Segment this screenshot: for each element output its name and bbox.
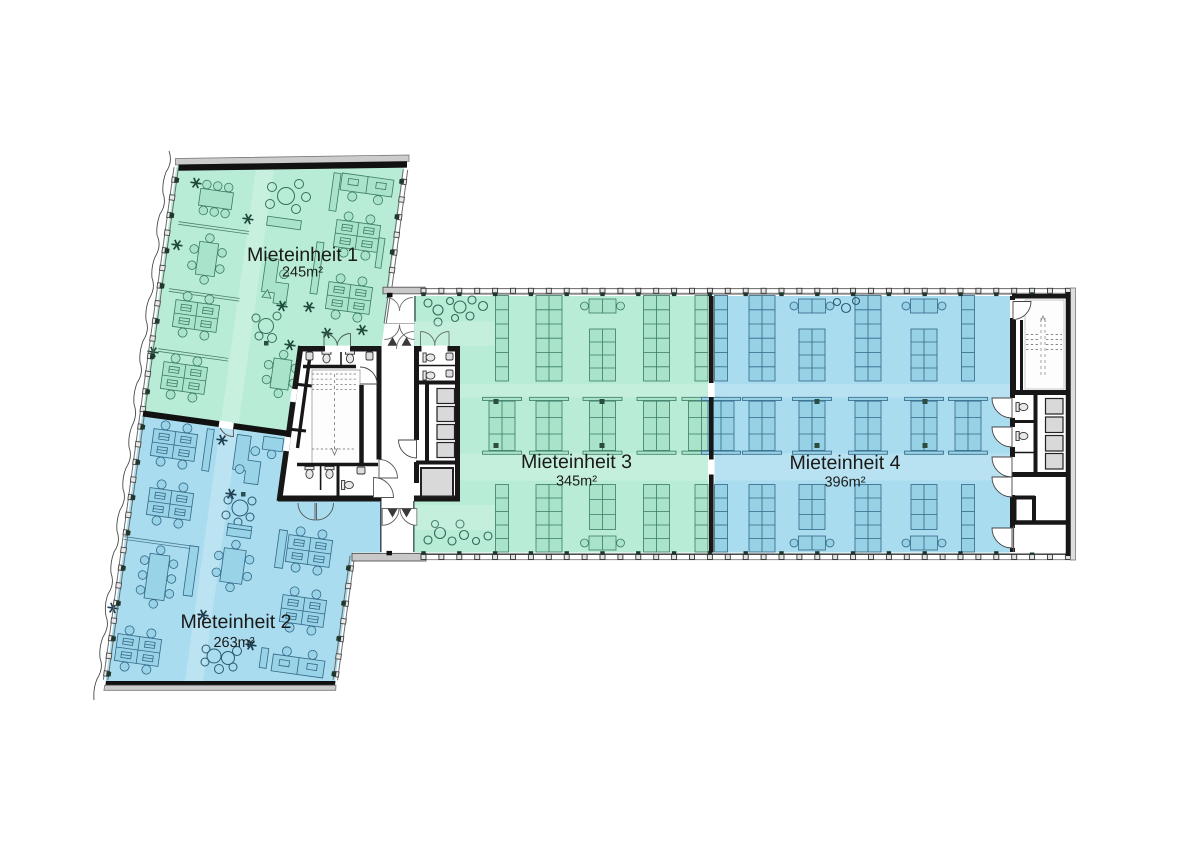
svg-text:Mieteinheit 4: Mieteinheit 4 xyxy=(789,452,900,474)
svg-text:Mieteinheit 2: Mieteinheit 2 xyxy=(180,611,291,633)
svg-text:396m²: 396m² xyxy=(824,475,865,491)
svg-text:Mieteinheit 3: Mieteinheit 3 xyxy=(521,451,632,473)
svg-text:345m²: 345m² xyxy=(556,474,597,490)
svg-text:Mieteinheit 1: Mieteinheit 1 xyxy=(247,244,358,266)
svg-text:245m²: 245m² xyxy=(282,265,323,281)
svg-text:263m²: 263m² xyxy=(213,635,254,651)
